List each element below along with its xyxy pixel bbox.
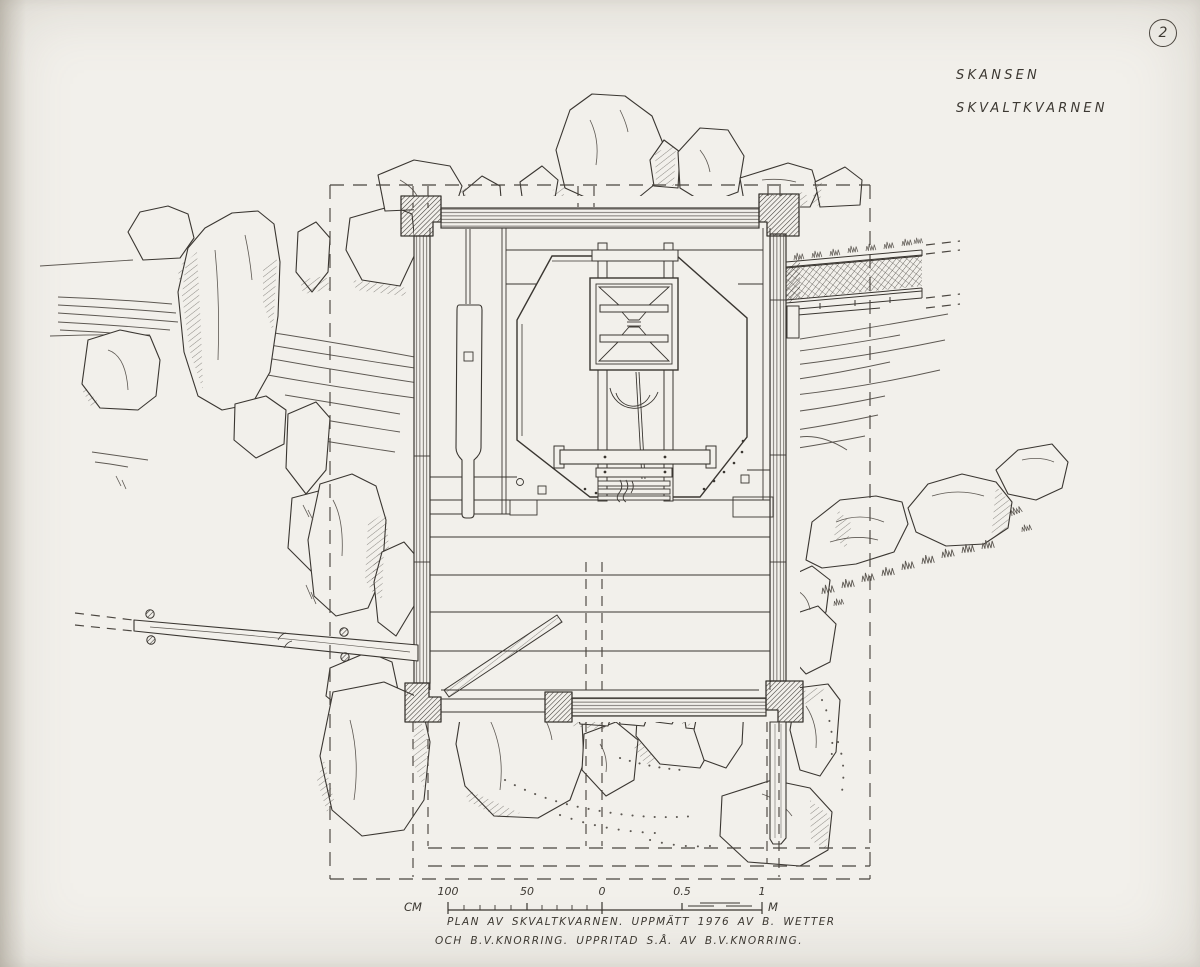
scale-unit-m: M — [768, 900, 778, 914]
scale-tick-100: 100 — [428, 885, 468, 898]
drawing-title: SKVALTKVARNEN — [956, 101, 1108, 116]
scale-tick-05: 0.5 — [662, 885, 702, 898]
corner-joint-mid-bottom — [545, 692, 572, 722]
foundation-post — [770, 722, 786, 844]
scale-tick-0: 0 — [582, 885, 622, 898]
log-wall-top — [441, 208, 759, 228]
scan-edge-shadow — [0, 0, 26, 967]
plan-line-art — [0, 0, 1200, 967]
scale-tick-50: 50 — [507, 885, 547, 898]
scale-unit-cm: CM — [404, 900, 422, 914]
measured-drawing-sheet: 2 SKANSEN SKVALTKVARNEN CM M 100 50 0 0.… — [0, 0, 1200, 967]
log-wall-bottom — [572, 698, 766, 716]
site-title: SKANSEN — [956, 68, 1040, 83]
door-sill — [441, 699, 545, 712]
caption-line-2: OCH B.V.KNORRING. UPPRITAD S.Å. AV B.V.K… — [435, 935, 803, 947]
log-wall-left — [414, 236, 430, 683]
scale-tick-1: 1 — [742, 885, 782, 898]
caption-line-1: PLAN AV SKVALTKVARNEN. UPPMÄTT 1976 AV B… — [447, 916, 835, 928]
flume-outlet — [787, 306, 799, 338]
sheet-number-badge: 2 — [1149, 19, 1177, 47]
log-wall-right — [770, 234, 786, 681]
